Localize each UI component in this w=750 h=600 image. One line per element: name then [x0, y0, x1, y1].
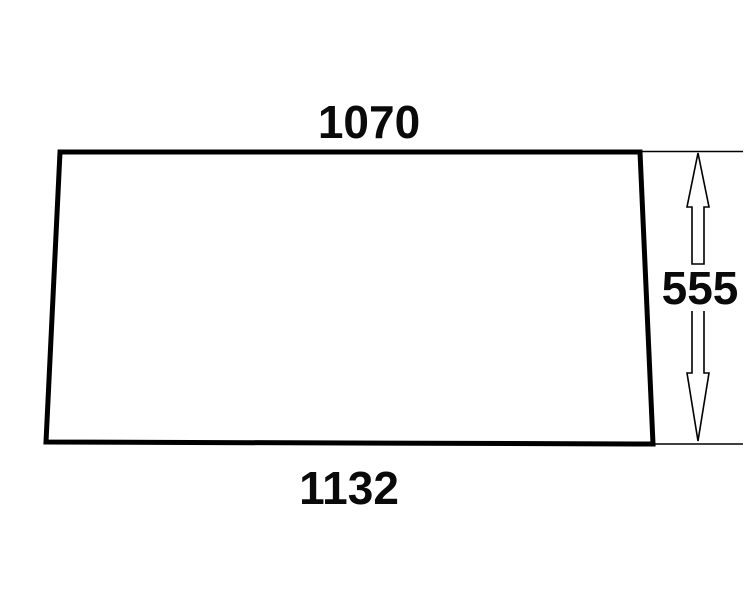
right-height-label: 555 — [660, 265, 741, 311]
top-width-label: 1070 — [318, 99, 420, 145]
dimension-drawing-canvas: 1070 1132 555 — [0, 0, 750, 600]
bottom-width-label: 1132 — [299, 465, 399, 511]
dimension-arrow-up-icon — [687, 153, 709, 264]
dimension-arrow-down-icon — [687, 307, 709, 441]
panel-outline — [46, 152, 653, 444]
